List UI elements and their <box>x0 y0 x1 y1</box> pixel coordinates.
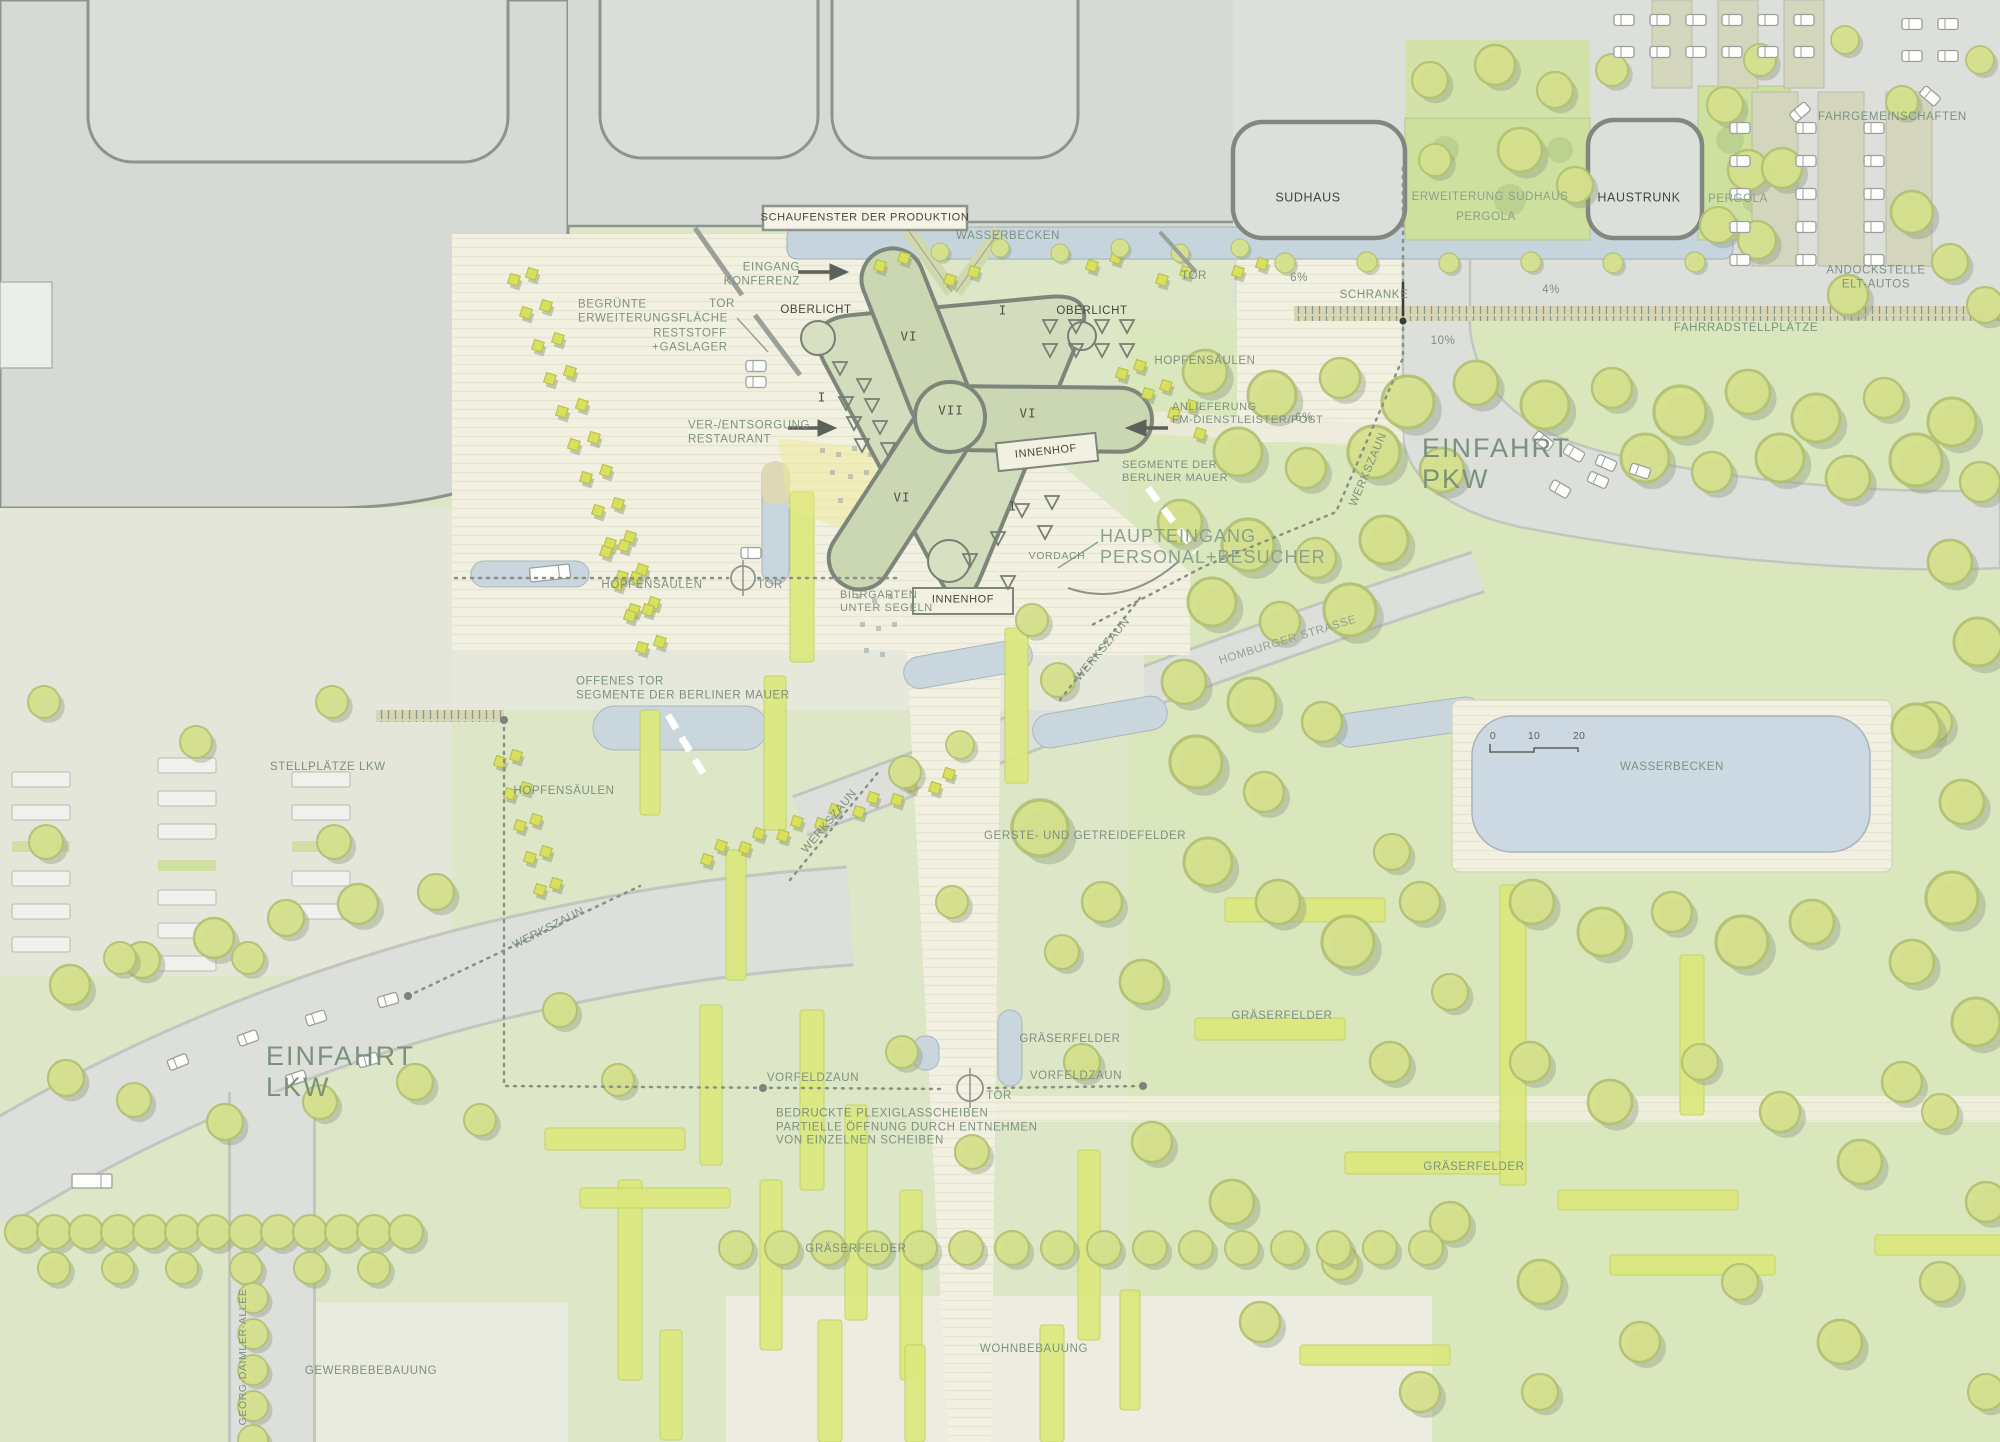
oberlicht-circle-west <box>801 321 835 355</box>
bicycle-parking-strip <box>1294 306 2000 321</box>
building-core-circle <box>915 382 985 452</box>
site-plan: SCHAUFENSTER DER PRODUKTION WASSERBECKEN… <box>0 0 2000 1442</box>
factory-block-center <box>568 0 1233 226</box>
vorfeld-band <box>988 1096 2000 1122</box>
schaufenster-box <box>763 206 967 230</box>
sudhaus-building <box>1233 122 1405 238</box>
innenhof-notch-lower <box>913 588 1013 614</box>
site-plan-canvas <box>0 0 2000 1442</box>
water-basin-east <box>1452 700 1892 872</box>
haustrunk-building <box>1588 120 1702 238</box>
oberlicht-circle-south <box>928 540 970 582</box>
